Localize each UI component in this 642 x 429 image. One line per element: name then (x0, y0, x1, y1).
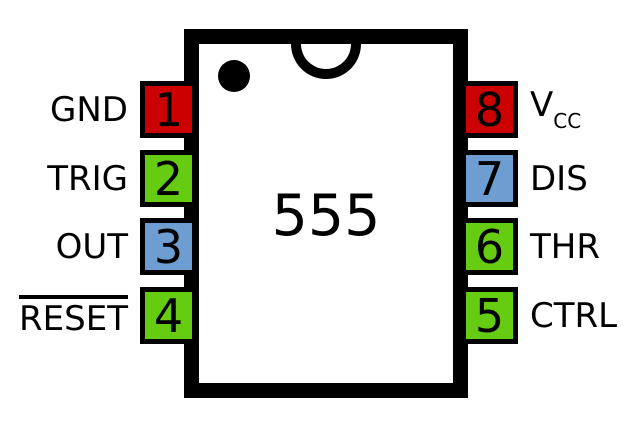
pin-label-dis: DIS (530, 150, 588, 207)
pin-label-gnd: GND (50, 81, 128, 138)
vcc-subscript: CC (553, 109, 581, 133)
pin-square-2: 2 (140, 150, 197, 207)
pin1-indicator-dot-icon (218, 60, 250, 92)
pin-label-text: CTRL (530, 299, 617, 333)
pin-label-reset: RESET (19, 287, 128, 344)
pin-label-trig: TRIG (47, 150, 128, 207)
pin-label-text-active-low: RESET (19, 295, 128, 336)
pin-number: 2 (154, 156, 183, 202)
pin-square-4: 4 (140, 287, 197, 344)
pin-label-text: DIS (530, 162, 588, 196)
chip-label: 555 (199, 180, 453, 252)
pin-label-text: THR (530, 230, 600, 264)
pin-number: 8 (475, 87, 504, 133)
pin-label-text: TRIG (47, 162, 128, 196)
pin-label-out: OUT (56, 218, 128, 275)
pin-label-text: VCC (530, 88, 581, 131)
555-pinout-diagram: 555 GND TRIG OUT RESET 1 2 3 4 8 7 6 5 V… (0, 0, 642, 429)
pin-square-3: 3 (140, 218, 197, 275)
pin-number: 5 (475, 293, 504, 339)
pin-number: 3 (154, 224, 183, 270)
pin-label-thr: THR (530, 218, 600, 275)
pin-label-vcc: VCC (530, 81, 581, 138)
pin-square-7: 7 (461, 150, 518, 207)
pin-number: 4 (154, 293, 183, 339)
pin-square-1: 1 (140, 81, 197, 138)
pin-label-text: OUT (56, 230, 128, 264)
pin-label-text: GND (50, 93, 128, 127)
pin-square-8: 8 (461, 81, 518, 138)
pin-square-6: 6 (461, 218, 518, 275)
pin-number: 6 (475, 224, 504, 270)
pin-number: 1 (154, 87, 183, 133)
pin-number: 7 (475, 156, 504, 202)
pin-square-5: 5 (461, 287, 518, 344)
pin-label-ctrl: CTRL (530, 287, 617, 344)
